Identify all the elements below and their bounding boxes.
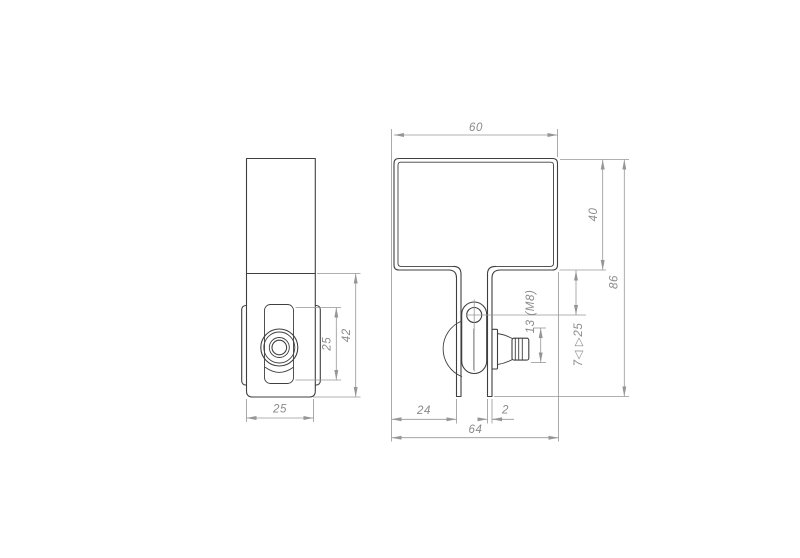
- dim-label-thickness: 2: [501, 405, 509, 417]
- clamp-jaw-arc: [443, 321, 462, 377]
- dim-label-side-slot-height: 25: [322, 337, 334, 352]
- front-left-leg: [449, 266, 462, 396]
- screw-knob: [512, 338, 529, 360]
- dim-label-overall-width: 64: [469, 424, 483, 436]
- dim-label-flange-height: 40: [588, 208, 600, 222]
- dim-label-side-width: 25: [272, 404, 287, 416]
- drawing-canvas: 42 25 25: [0, 0, 800, 558]
- dim-label-clamp-range: 7◁ ▷25: [573, 323, 585, 367]
- technical-drawing: 42 25 25: [0, 0, 800, 558]
- dim-label-side-overall-height: 42: [341, 328, 353, 342]
- side-view: [242, 159, 321, 398]
- side-slot-plate: [265, 305, 294, 384]
- front-view: [394, 159, 558, 397]
- screw-taper: [498, 334, 513, 365]
- dim-label-top-width: 60: [469, 122, 483, 134]
- front-plate-outer: [394, 159, 558, 271]
- dim-label-left-offset: 24: [416, 405, 431, 417]
- dim-label-knob-spec: 13 (M8): [525, 290, 537, 334]
- dim-label-front-overall-height: 86: [609, 275, 621, 289]
- screw-flange: [492, 329, 498, 369]
- side-upper-section: [247, 159, 316, 274]
